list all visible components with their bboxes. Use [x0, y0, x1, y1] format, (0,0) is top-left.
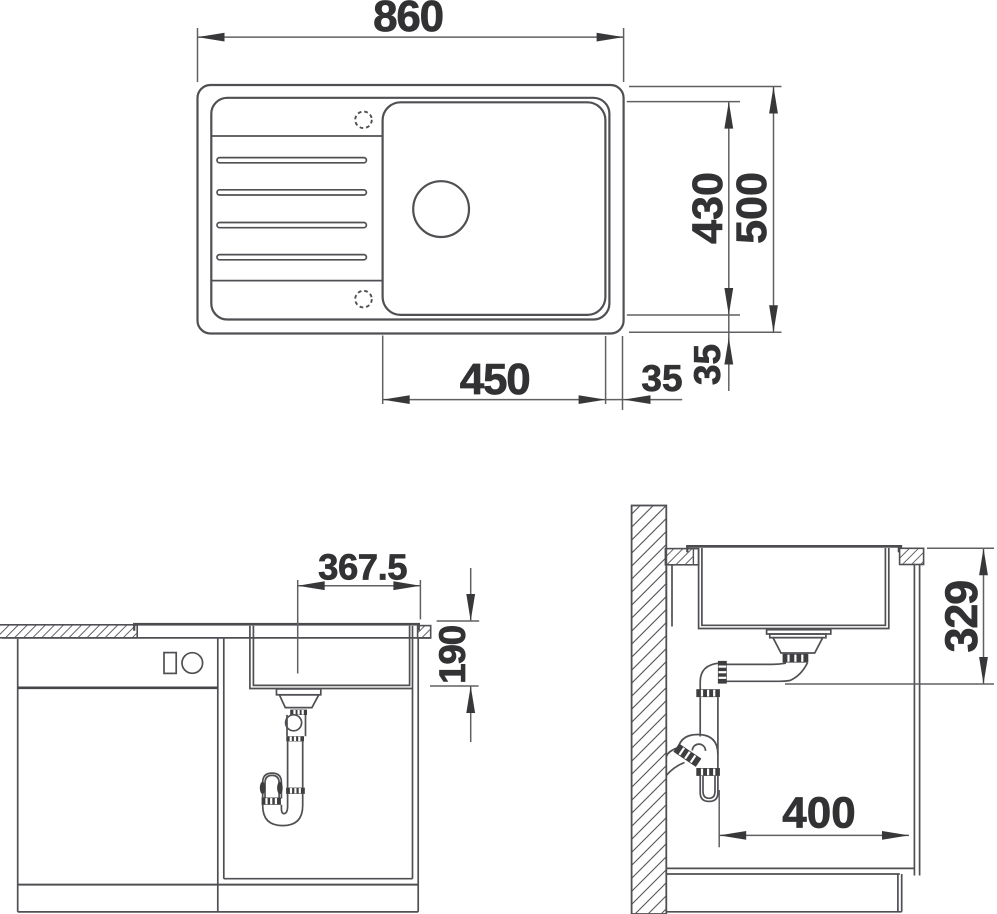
svg-text:450: 450 — [460, 355, 530, 404]
svg-text:35: 35 — [687, 344, 728, 385]
svg-text:500: 500 — [728, 172, 776, 244]
svg-text:430: 430 — [684, 172, 732, 244]
svg-text:400: 400 — [782, 788, 855, 837]
svg-text:35: 35 — [641, 358, 682, 399]
svg-text:329: 329 — [936, 581, 987, 653]
svg-text:860: 860 — [373, 0, 443, 41]
svg-text:367.5: 367.5 — [318, 547, 407, 588]
svg-text:190: 190 — [432, 625, 473, 684]
